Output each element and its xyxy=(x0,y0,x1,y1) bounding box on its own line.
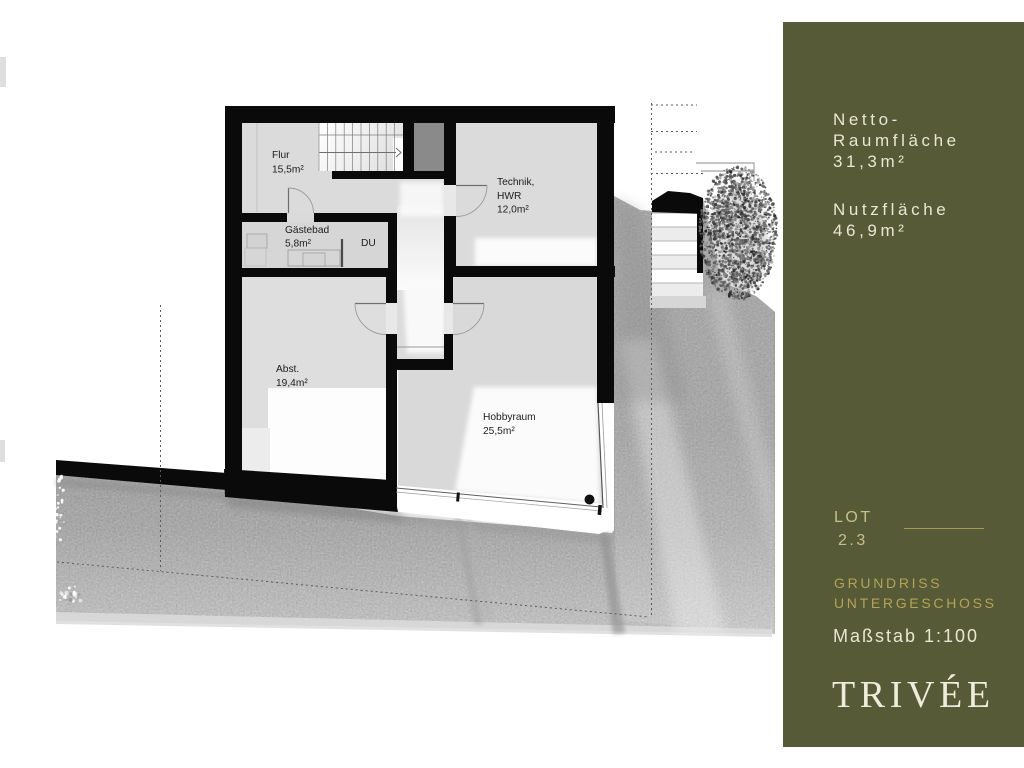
svg-text:Technik,: Technik, xyxy=(497,177,534,188)
svg-text:25,5m²: 25,5m² xyxy=(483,426,515,437)
svg-text:Gästebad: Gästebad xyxy=(285,225,330,236)
svg-text:12,0m²: 12,0m² xyxy=(497,205,529,216)
svg-text:Abst.: Abst. xyxy=(276,364,299,375)
svg-text:HWR: HWR xyxy=(497,191,521,202)
svg-text:19,4m²: 19,4m² xyxy=(276,378,308,389)
svg-text:Flur: Flur xyxy=(272,150,290,161)
svg-text:DU: DU xyxy=(361,238,376,249)
svg-text:Hobbyraum: Hobbyraum xyxy=(483,412,536,423)
svg-text:5,8m²: 5,8m² xyxy=(285,239,312,250)
svg-text:15,5m²: 15,5m² xyxy=(272,165,304,176)
